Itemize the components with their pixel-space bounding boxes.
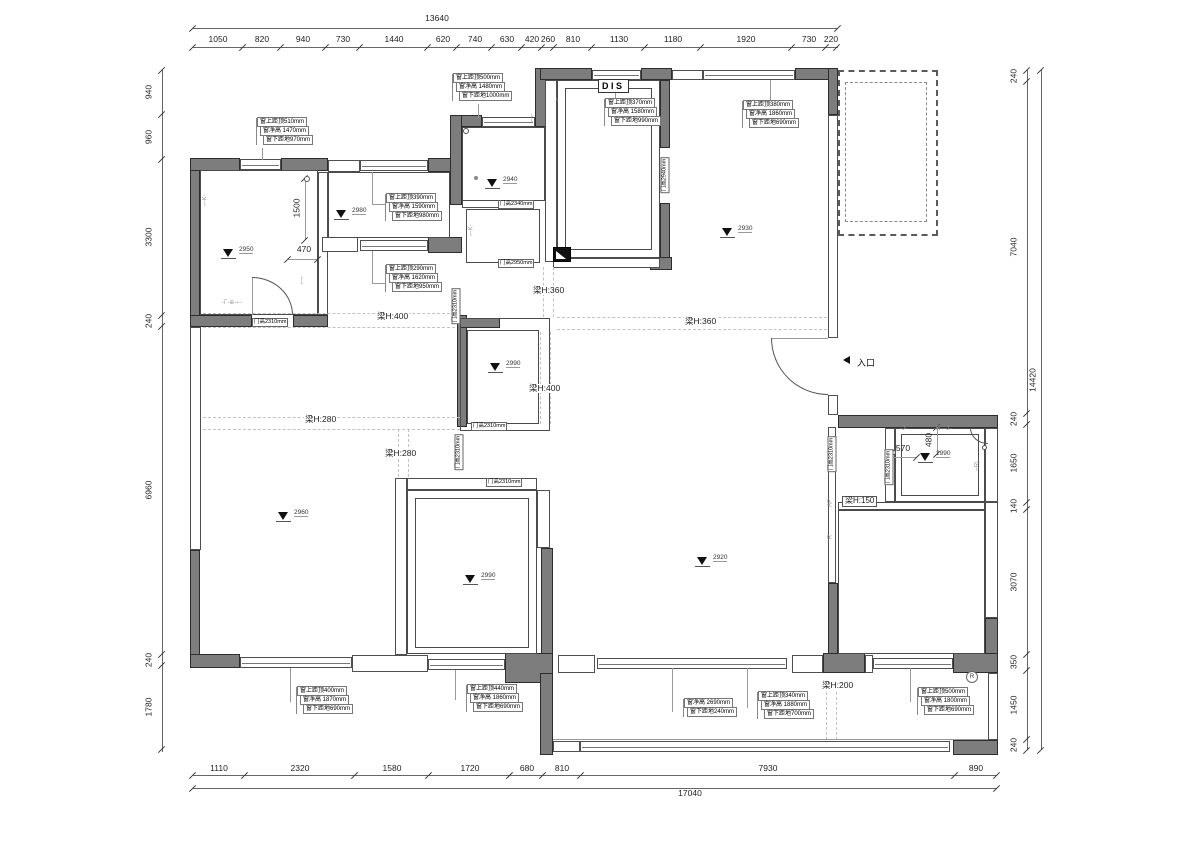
window-spec-line: 窗净高 1880mm (761, 700, 810, 710)
dim-570: 570 (896, 444, 910, 453)
dimension-tick (993, 785, 1000, 792)
ceiling-height-marker: 2920 (713, 554, 727, 562)
drawing-line (372, 172, 373, 204)
partition-wall (395, 478, 407, 655)
window-spec-line: 窗下距地690mm (924, 705, 974, 715)
wall-segment (828, 68, 838, 115)
ceiling-height-marker: 2930 (738, 225, 752, 233)
window-spec-line: 窗下距地980mm (392, 211, 442, 221)
dis-label: DIS (598, 79, 629, 93)
door-height-label: 门高2940mm (661, 157, 670, 193)
window-spec-line: 窗净高 1860mm (470, 693, 519, 703)
window-spec-line: 窗上距顶500mm (453, 73, 503, 83)
drawing-line (372, 204, 385, 205)
window (240, 657, 352, 668)
ceiling-marker-line (720, 237, 735, 238)
ceiling-marker-triangle (465, 575, 475, 583)
dimension-label: 1720 (461, 764, 480, 773)
partition-wall (828, 115, 838, 338)
fixture-symbol: ⌐-⌐ (300, 275, 307, 284)
dimension-label: 940 (296, 35, 310, 44)
window (428, 659, 505, 670)
dimension-line (193, 788, 997, 789)
window-spec-line: 窗下距地970mm (263, 135, 313, 145)
ceiling-height-marker: 2980 (352, 207, 366, 215)
room-outline (838, 510, 985, 654)
ceiling-marker-triangle (336, 210, 346, 218)
window-spec-line: 窗下距地690mm (303, 704, 353, 714)
window (360, 160, 428, 171)
window-spec-line: 窗下距地700mm (764, 709, 814, 719)
dimension-label: 890 (969, 764, 983, 773)
dimension-label: 820 (255, 35, 269, 44)
partition-wall (553, 741, 580, 752)
window-spec-line: 窗净高 1470mm (260, 126, 309, 136)
fixture-circle (474, 176, 478, 180)
dim-470: 470 (297, 245, 311, 254)
window-spec-line: 窗净高 1620mm (389, 273, 438, 283)
window-spec-line: 窗上距顶290mm (386, 264, 436, 274)
drawing-line (672, 668, 673, 712)
partition-wall (462, 200, 500, 208)
wall-segment (641, 68, 672, 80)
dimension-label: 740 (468, 35, 482, 44)
ceiling-marker-triangle (697, 557, 707, 565)
dimension-label: 1180 (664, 35, 682, 44)
dimension-label: 2320 (291, 764, 310, 773)
window-spec-line: 窗净高 1800mm (921, 696, 970, 706)
partition-wall (672, 70, 703, 80)
drawing-line (910, 668, 911, 702)
ceiling-marker-line (485, 188, 500, 189)
wall-segment (428, 237, 462, 253)
dimension-tick (1037, 747, 1044, 754)
window-spec-line: 窗上距顶380mm (743, 100, 793, 110)
wall-segment (823, 653, 865, 673)
dimension-label: 240 (1009, 69, 1018, 83)
wall-segment (190, 315, 252, 327)
door-height-label: 门高2310mm (455, 434, 464, 470)
window-spec-label: 窗上距顶510mm窗净高 1470mm窗下距地970mm (256, 118, 313, 145)
ceiling-marker-triangle (487, 179, 497, 187)
dimension-label: 1050 (209, 35, 228, 44)
partition-wall (985, 502, 998, 618)
drawing-line (372, 283, 385, 284)
drawing-line (290, 668, 291, 702)
fixture-circle (982, 445, 987, 450)
dimension-label: 420 (525, 35, 539, 44)
window-spec-line: 窗上距顶400mm (297, 686, 347, 696)
window (597, 658, 787, 669)
wall-segment (190, 550, 200, 656)
dimension-label: 7040 (1009, 238, 1018, 257)
partition-wall (792, 655, 823, 673)
wall-segment (293, 315, 328, 327)
window-spec-line: 窗上距顶440mm (467, 684, 517, 694)
window-spec-line: 窗下距地690mm (749, 118, 799, 128)
window (703, 70, 795, 80)
door-height-label: 门高2310mm (471, 422, 507, 431)
ceiling-marker-line (918, 462, 933, 463)
ceiling-marker-triangle (278, 512, 288, 520)
ceiling-height-marker: 2950 (239, 246, 253, 254)
dimension-label: 630 (500, 35, 514, 44)
ceiling-marker-triangle (722, 228, 732, 236)
partition-wall (558, 655, 595, 673)
door-height-label: 门高2310mm (252, 318, 288, 327)
window (873, 658, 953, 669)
dimension-label: 3300 (144, 228, 153, 247)
beam-height-label: 梁H:360 (532, 286, 565, 295)
fixture-symbol: ⌐-K- (203, 194, 210, 206)
beam-height-label: 梁H:400 (528, 384, 561, 393)
window-spec-line: 窗净高 1480mm (456, 82, 505, 92)
window-spec-line: 窗净高 2690mm (684, 698, 733, 708)
dimension-label: 1450 (1009, 696, 1018, 715)
beam-dashed-line (557, 329, 827, 330)
window-spec-line: 窗上距顶500mm (918, 687, 968, 697)
drawing-line (262, 148, 263, 160)
wall-segment (540, 673, 553, 755)
dimension-label: 6960 (144, 481, 153, 500)
drawing-line (455, 670, 456, 700)
switch-symbol: -R—J- (934, 426, 951, 433)
entrance-label: 入口 (857, 356, 875, 369)
dimension-label: 240 (144, 653, 153, 667)
door-height-label: 门高2310mm (885, 449, 894, 485)
window (580, 741, 950, 752)
beam-dashed-line (550, 332, 551, 424)
flue-symbol (553, 247, 571, 262)
drawing-line (553, 739, 988, 740)
ceiling-height-marker: 2990 (936, 450, 950, 458)
room-outline (901, 434, 979, 496)
partition-wall (988, 673, 998, 740)
wall-segment (450, 115, 462, 205)
drawing-line (305, 178, 306, 240)
dimension-tick (1023, 747, 1030, 754)
window-spec-label: 窗上距顶440mm窗净高 1860mm窗下距地690mm (466, 685, 523, 712)
drawing-line (747, 668, 748, 708)
beam-dashed-line (836, 692, 837, 740)
window-spec-label: 窗上距顶500mm窗净高 1480mm窗下距地1000mm (452, 74, 512, 101)
dimension-label: 810 (566, 35, 580, 44)
dimension-tick (833, 44, 840, 51)
dimension-label: 140 (1009, 499, 1018, 513)
dimension-label: 730 (802, 35, 816, 44)
beam-dashed-line (203, 327, 455, 328)
dimension-label: 350 (1009, 655, 1018, 669)
dimension-line (193, 28, 838, 29)
window-spec-label: 窗上距顶370mm窗净高 1580mm窗下距地990mm (604, 99, 661, 126)
beam-height-label: 梁H:280 (384, 449, 417, 458)
dim-480: 480 (924, 433, 933, 447)
dimension-label: 240 (144, 314, 153, 328)
dimension-label: 730 (336, 35, 350, 44)
drawing-line (478, 104, 479, 118)
dimension-label: 940 (144, 85, 153, 99)
dimension-label: 1130 (610, 35, 628, 44)
switch-symbol: -J- (900, 426, 907, 433)
partition-wall (537, 490, 550, 548)
door-height-label: 门高2310mm (452, 288, 461, 324)
window-spec-line: 窗净高 1870mm (300, 695, 349, 705)
ceiling-marker-line (695, 566, 710, 567)
ceiling-height-marker: 2940 (503, 176, 517, 184)
window (240, 159, 281, 170)
window-spec-line: 窗下距地950mm (392, 282, 442, 292)
window-spec-label: 窗净高 2690mm窗下距地240mm (683, 699, 737, 717)
dimension-label: 1780 (144, 698, 153, 717)
partition-wall (328, 160, 360, 172)
partition-wall (190, 327, 201, 550)
dimension-label: 620 (436, 35, 450, 44)
window-spec-label: 窗上距顶500mm窗净高 1800mm窗下距地690mm (917, 688, 974, 715)
dimension-line (162, 70, 163, 752)
beam-dashed-line (203, 429, 460, 430)
ceiling-marker-triangle (490, 363, 500, 371)
ceiling-marker-triangle (920, 453, 930, 461)
dimension-label: 7930 (759, 764, 778, 773)
fixture-symbol: -Γ-⊕-⌐- (222, 300, 242, 307)
switch-symbol: ⌐R| (975, 461, 982, 470)
dimension-total-label: 13640 (425, 14, 449, 23)
beam-height-label: 梁H:200 (821, 681, 854, 690)
window-spec-line: 窗净高 1580mm (608, 107, 657, 117)
balcony-dashed-outline (845, 82, 927, 222)
dimension-label: 220 (824, 35, 838, 44)
ceiling-marker-triangle (223, 249, 233, 257)
window-spec-label: 窗上距顶390mm窗净高 1590mm窗下距地980mm (385, 194, 442, 221)
drawing-line (372, 251, 373, 283)
ceiling-height-marker: 2990 (506, 360, 520, 368)
room-outline (466, 209, 540, 263)
dimension-label: 260 (541, 35, 555, 44)
window (360, 240, 428, 251)
partition-wall (545, 80, 557, 262)
beam-height-label: 梁H:360 (684, 317, 717, 326)
beam-dashed-line (826, 692, 827, 740)
beam-height-label: 梁H:280 (304, 415, 337, 424)
entrance-arrow-icon (843, 356, 850, 364)
partition-wall (352, 655, 428, 672)
dimension-label: 810 (555, 764, 569, 773)
window (482, 117, 535, 127)
wall-segment (541, 548, 553, 655)
fixture-symbol: ⌐ (555, 97, 562, 101)
shaft-label: R (828, 535, 835, 539)
dimension-label: 680 (520, 764, 534, 773)
dimension-label: 240 (1009, 412, 1018, 426)
window-spec-line: 窗上距顶390mm (386, 193, 436, 203)
partition-wall (322, 237, 358, 252)
dimension-label: 1920 (737, 35, 756, 44)
window-spec-line: 窗下距地690mm (473, 702, 523, 712)
ceiling-marker-line (488, 372, 503, 373)
window-spec-label: 窗上距顶400mm窗净高 1870mm窗下距地690mm (296, 687, 353, 714)
window-spec-label: 窗上距顶380mm窗净高 1860mm窗下距地690mm (742, 101, 799, 128)
dimension-tick (993, 772, 1000, 779)
dimension-line (1041, 70, 1042, 750)
drawing-line (891, 457, 917, 458)
ceiling-marker-line (463, 584, 478, 585)
ceiling-height-marker: 2960 (294, 509, 308, 517)
partition-wall (865, 655, 873, 673)
fixture-circle (304, 176, 310, 182)
beam-height-label: 梁H:400 (376, 312, 409, 321)
drawing-line (770, 80, 771, 102)
dim-1500: 1500 (292, 199, 301, 218)
door-height-label: 门高2340mm (498, 200, 534, 209)
door-swing-arc (771, 338, 828, 395)
wall-segment (660, 80, 670, 148)
dimension-line (193, 47, 838, 48)
window-spec-label: 窗上距顶290mm窗净高 1620mm窗下距地950mm (385, 265, 442, 292)
room-outline (415, 498, 529, 648)
wall-segment (190, 158, 200, 318)
dimension-tick (834, 25, 841, 32)
room-outline (462, 127, 545, 201)
fixture-symbol: ⌐-K- (469, 224, 476, 236)
wall-segment (540, 68, 592, 80)
wall-segment (660, 203, 670, 263)
window-spec-line: 窗上距顶340mm (758, 691, 808, 701)
dimension-label: 1110 (210, 764, 228, 773)
fixture-symbol: ⌐-⌐ (530, 113, 537, 122)
window-spec-line: 窗净高 1590mm (389, 202, 438, 212)
dimension-label: 240 (1009, 738, 1018, 752)
dimension-label: 960 (144, 130, 153, 144)
door-height-label: 门高2950mm (498, 259, 534, 268)
dimension-label: 3070 (1009, 573, 1018, 592)
dimension-label: 1650 (1009, 454, 1018, 473)
window-spec-line: 窗下距地1000mm (459, 91, 512, 101)
window-spec-line: 窗净高 1860mm (746, 109, 795, 119)
beam-height-label: 梁H:150 (842, 496, 877, 507)
dimension-label: 1580 (383, 764, 402, 773)
ceiling-marker-line (276, 521, 291, 522)
window-spec-line: 窗上距顶510mm (257, 117, 307, 127)
dimension-label: 1440 (385, 35, 404, 44)
ceiling-marker-line (221, 258, 236, 259)
door-height-label: 门高2310mm (486, 478, 522, 487)
window-spec-line: 窗下距地240mm (687, 707, 737, 717)
floor-plan-canvas: 1050820940730144062074063042026081011301… (0, 0, 1200, 848)
wall-segment (953, 740, 998, 755)
beam-dashed-line (540, 332, 541, 424)
window-spec-label: 窗上距顶340mm窗净高 1880mm窗下距地700mm (757, 692, 814, 719)
fixture-circle (463, 128, 469, 134)
dimension-line (193, 775, 997, 776)
window-spec-line: 窗上距顶370mm (605, 98, 655, 108)
wall-segment (190, 654, 240, 668)
circled-r-symbol: R (966, 671, 978, 683)
window-spec-line: 窗下距地990mm (611, 116, 661, 126)
door-height-label: 门高2310mm (828, 436, 837, 472)
drawing-line (288, 259, 318, 260)
wall-segment (838, 415, 998, 428)
ceiling-marker-line (334, 219, 349, 220)
dimension-total-label: 17040 (678, 789, 702, 798)
wall-segment (953, 653, 998, 673)
ceiling-height-marker: 2990 (481, 572, 495, 580)
shaft-label: AP (828, 499, 835, 507)
beam-dashed-line (203, 313, 455, 314)
partition-wall (828, 395, 838, 415)
wall-segment (985, 618, 998, 654)
room-outline (460, 318, 550, 431)
dimension-total-label: 14420 (1028, 368, 1037, 392)
